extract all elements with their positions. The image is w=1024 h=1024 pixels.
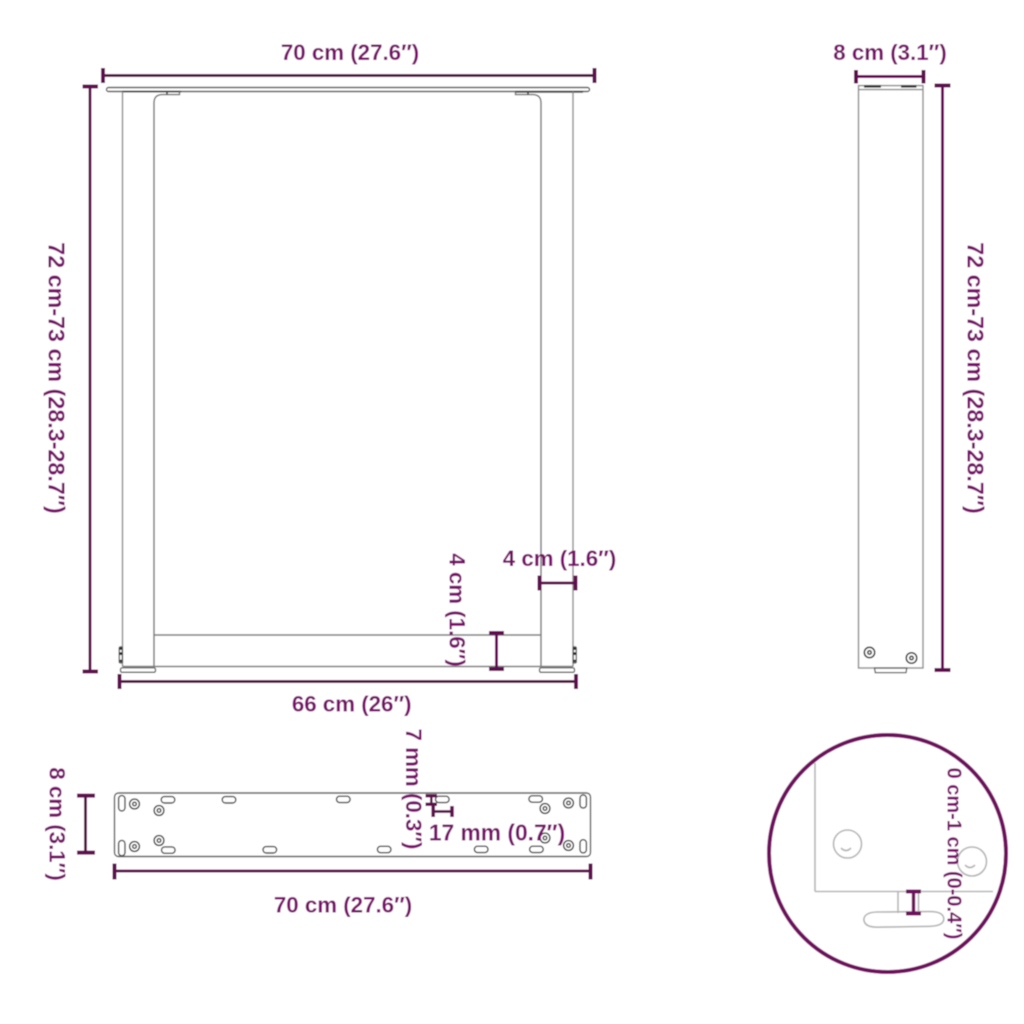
svg-text:72 cm-73 cm (28.3-28.7″): 72 cm-73 cm (28.3-28.7″): [44, 242, 70, 513]
svg-text:70 cm (27.6″): 70 cm (27.6″): [274, 893, 412, 918]
svg-text:4 cm (1.6″): 4 cm (1.6″): [503, 546, 617, 571]
svg-text:8 cm (3.1″): 8 cm (3.1″): [833, 40, 947, 65]
svg-text:4 cm (1.6″): 4 cm (1.6″): [445, 553, 470, 667]
svg-text:72 cm-73 cm (28.3-28.7″): 72 cm-73 cm (28.3-28.7″): [963, 242, 989, 513]
svg-text:8 cm (3.1″): 8 cm (3.1″): [45, 767, 70, 881]
svg-text:17 mm (0.7″): 17 mm (0.7″): [429, 820, 565, 846]
svg-text:0 cm-1 cm (0-0.4″): 0 cm-1 cm (0-0.4″): [943, 768, 965, 940]
svg-text:70 cm (27.6″): 70 cm (27.6″): [281, 40, 419, 65]
svg-text:7 mm (0.3″): 7 mm (0.3″): [401, 729, 426, 850]
svg-text:66 cm (26″): 66 cm (26″): [292, 692, 412, 717]
